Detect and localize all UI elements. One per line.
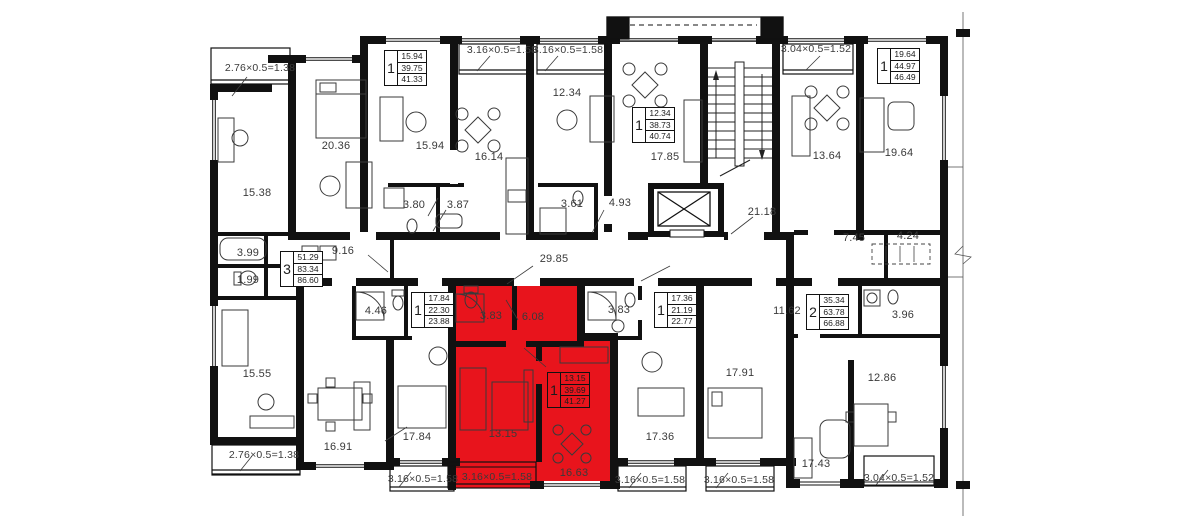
rooms-count: 3 [281,252,294,286]
total-area-value: 40.74 [646,131,674,142]
total-area-value: 66.88 [820,318,848,329]
room-area-label: 16.91 [324,441,353,453]
apartment-info-table: 112.3438.7340.74 [632,107,675,143]
balcony-dimension-label: 2.76×0.5=1.38 [229,449,299,461]
room-area-label: 17.91 [726,367,755,379]
room-area-label: 16.63 [560,467,589,479]
rooms-count: 1 [548,373,561,407]
rooms-count: 2 [807,295,820,329]
living-area-value: 17.84 [425,293,453,305]
living-area-value: 12.34 [646,108,674,120]
room-area-label: 4.24 [897,230,919,242]
area-value: 83.34 [294,264,322,276]
balcony-dimension-label: 3.16×0.5=1.58 [533,44,603,56]
apartment-info-table: 235.3463.7866.88 [806,294,849,330]
total-area-value: 23.88 [425,316,453,327]
apartment-info-table: 117.3621.1922.77 [654,292,697,328]
rooms-count: 1 [412,293,425,327]
room-area-label: 3.87 [447,199,469,211]
room-area-label: 15.55 [243,368,272,380]
floor-plan: 15.3820.3615.9416.1412.3417.8521.1813.64… [0,0,1184,529]
room-area-label: 15.94 [416,140,445,152]
room-area-label: 3.99 [237,247,259,259]
room-area-label: 11.62 [773,305,801,317]
total-area-value: 22.77 [668,316,696,327]
room-area-label: 15.38 [243,187,272,199]
room-area-label: 20.36 [322,140,351,152]
floor-plan-svg [0,0,1184,529]
area-value: 39.69 [561,385,589,397]
rooms-count: 1 [385,51,398,85]
room-area-label: 16.14 [475,151,504,163]
balcony-dimension-label: 3.16×0.5=1.58 [467,44,537,56]
balcony-dimension-label: 3.16×0.5=1.58 [615,474,685,486]
room-area-label: 9.16 [332,245,354,257]
balcony-dimension-label: 2.76×0.5=1.38 [225,62,295,74]
balcony-dimension-label: 3.16×0.5=1.58 [462,471,532,483]
area-value: 63.78 [820,307,848,319]
living-area-value: 51.29 [294,252,322,264]
room-area-label: 13.64 [813,150,842,162]
balcony-dimension-label: 3.16×0.5=1.58 [388,473,458,485]
area-value: 22.30 [425,305,453,317]
balcony-dimension-label: 3.16×0.5=1.58 [704,474,774,486]
apartment-info-table: 119.6444.9746.49 [877,48,920,84]
apartment-info-table: 351.2983.3486.60 [280,251,323,287]
area-value: 44.97 [891,61,919,73]
room-area-label: 3.83 [608,304,630,316]
room-area-label: 7.45 [843,232,865,244]
room-area-label: 17.84 [403,431,432,443]
total-area-value: 86.60 [294,275,322,286]
elevator-shaft [658,192,710,237]
room-area-label: 4.93 [609,197,631,209]
living-area-value: 35.34 [820,295,848,307]
room-area-label: 1.99 [237,274,259,286]
room-area-label: 29.85 [540,253,569,265]
rooms-count: 1 [655,293,668,327]
total-area-value: 41.33 [398,74,426,85]
living-area-value: 13.15 [561,373,589,385]
room-area-label: 21.18 [748,206,777,218]
room-area-label: 4.46 [365,305,387,317]
area-value: 38.73 [646,120,674,132]
room-area-label: 6.08 [522,311,544,323]
room-area-label: 17.43 [802,458,831,470]
rooms-count: 1 [633,108,646,142]
apartment-info-table[interactable]: 113.1539.6941.27 [547,372,590,408]
room-area-label: 12.34 [553,87,582,99]
total-area-value: 46.49 [891,72,919,83]
staircase [708,62,772,176]
room-area-label: 13.15 [489,428,518,440]
room-area-label: 17.85 [651,151,680,163]
rooms-count: 1 [878,49,891,83]
balcony-dimension-label: 3.04×0.5=1.52 [864,472,934,484]
apartment-info-table: 117.8422.3023.88 [411,292,454,328]
section-axis [948,12,971,516]
living-area-value: 17.36 [668,293,696,305]
room-area-label: 3.83 [480,310,502,322]
room-area-label: 3.80 [403,199,425,211]
area-value: 21.19 [668,305,696,317]
living-area-value: 19.64 [891,49,919,61]
room-area-label: 12.86 [868,372,897,384]
room-area-label: 3.96 [892,309,914,321]
area-value: 39.75 [398,63,426,75]
balcony-dimension-label: 3.04×0.5=1.52 [781,43,851,55]
apartment-info-table: 115.9439.7541.33 [384,50,427,86]
room-area-label: 3.61 [561,198,583,210]
room-area-label: 19.64 [885,147,914,159]
living-area-value: 15.94 [398,51,426,63]
total-area-value: 41.27 [561,396,589,407]
room-area-label: 17.36 [646,431,675,443]
